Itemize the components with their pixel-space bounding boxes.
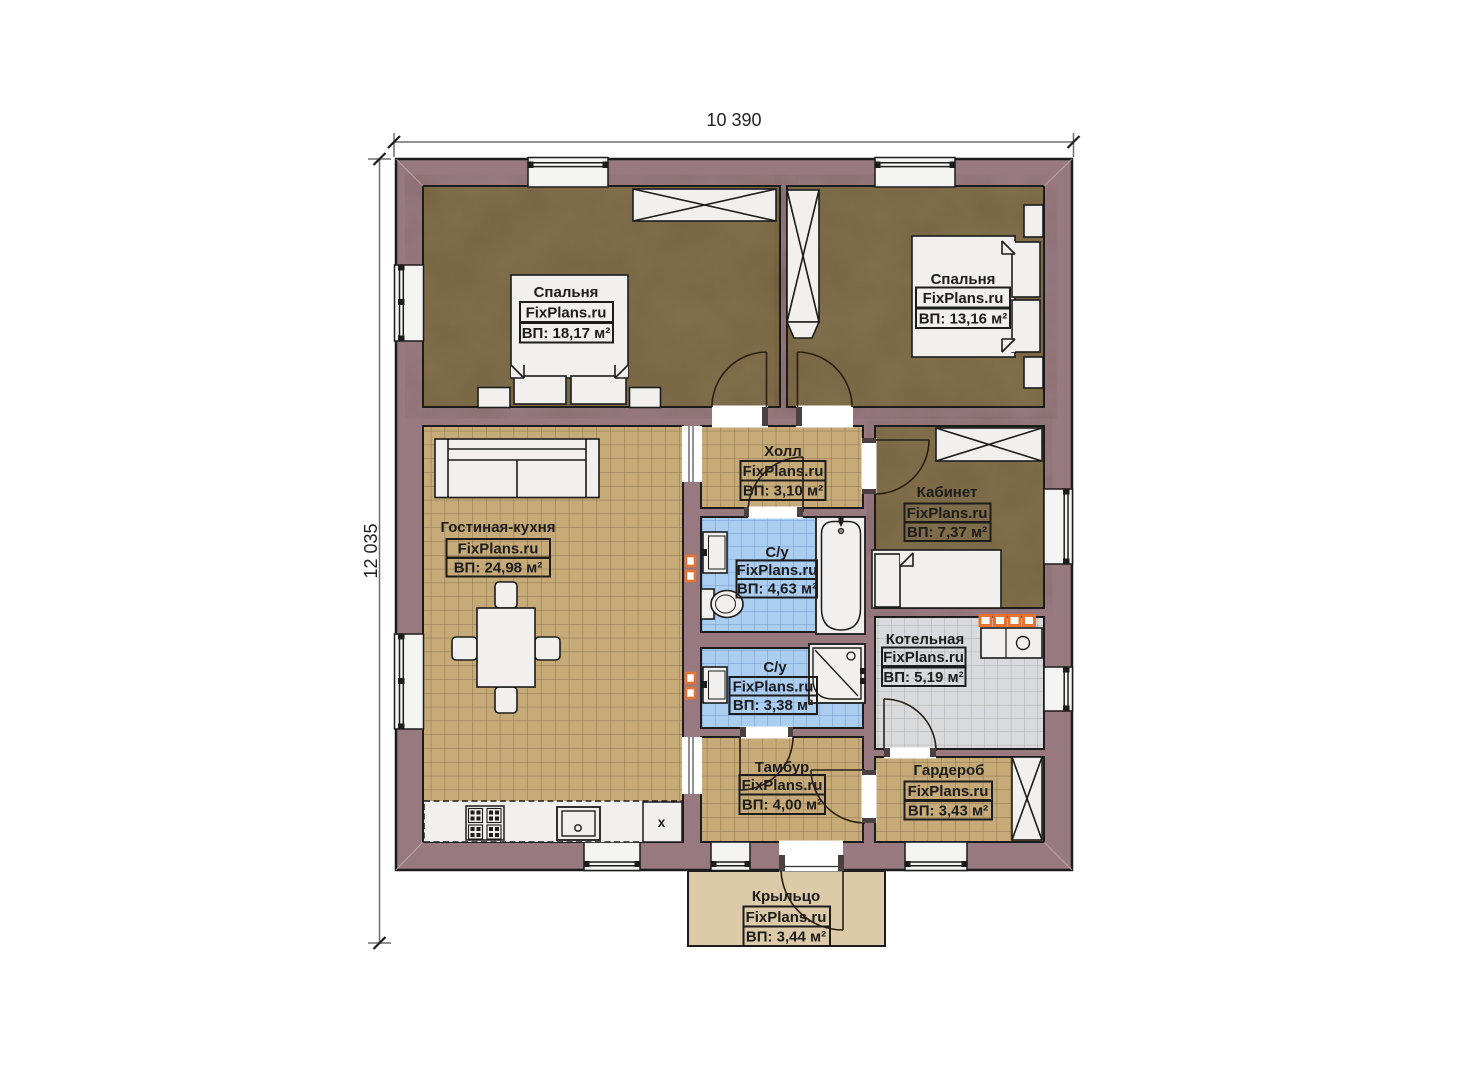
svg-text:ВП: 24,98 м²: ВП: 24,98 м² — [454, 560, 543, 577]
svg-text:ВП: 3,38 м²: ВП: 3,38 м² — [733, 697, 813, 714]
svg-text:Спальня: Спальня — [931, 271, 996, 288]
svg-text:Гардероб: Гардероб — [914, 762, 985, 779]
svg-text:ВП: 13,16 м²: ВП: 13,16 м² — [919, 311, 1008, 328]
svg-text:ВП: 3,10 м²: ВП: 3,10 м² — [743, 483, 823, 500]
svg-text:FixPlans.ru: FixPlans.ru — [908, 783, 989, 800]
svg-text:ВП: 4,63 м²: ВП: 4,63 м² — [737, 581, 817, 598]
svg-text:Котельная: Котельная — [886, 631, 965, 648]
svg-text:FixPlans.ru: FixPlans.ru — [883, 649, 964, 666]
svg-text:Холл: Холл — [764, 443, 802, 460]
svg-text:FixPlans.ru: FixPlans.ru — [746, 909, 827, 926]
svg-text:Крыльцо: Крыльцо — [752, 888, 820, 905]
svg-text:Спальня: Спальня — [534, 284, 599, 301]
svg-text:Тамбур: Тамбур — [755, 759, 809, 776]
svg-text:ВП: 4,00 м²: ВП: 4,00 м² — [742, 797, 822, 814]
svg-text:Гостиная-кухня: Гостиная-кухня — [441, 519, 556, 536]
svg-text:FixPlans.ru: FixPlans.ru — [733, 679, 814, 696]
svg-text:Кабинет: Кабинет — [917, 484, 978, 501]
svg-text:С/у: С/у — [763, 659, 787, 676]
svg-text:ВП: 7,37 м²: ВП: 7,37 м² — [907, 524, 987, 541]
svg-text:x: x — [658, 815, 666, 830]
svg-text:FixPlans.ru: FixPlans.ru — [526, 305, 607, 322]
svg-text:ВП: 3,43 м²: ВП: 3,43 м² — [908, 803, 988, 820]
svg-text:FixPlans.ru: FixPlans.ru — [923, 290, 1004, 307]
svg-text:FixPlans.ru: FixPlans.ru — [737, 562, 818, 579]
svg-text:ВП: 5,19 м²: ВП: 5,19 м² — [883, 669, 963, 686]
svg-text:FixPlans.ru: FixPlans.ru — [907, 505, 988, 522]
svg-text:ВП: 18,17 м²: ВП: 18,17 м² — [522, 325, 611, 342]
svg-text:10 390: 10 390 — [706, 110, 761, 130]
svg-text:12 035: 12 035 — [361, 523, 381, 578]
svg-text:FixPlans.ru: FixPlans.ru — [742, 777, 823, 794]
svg-text:С/у: С/у — [765, 544, 789, 561]
svg-text:FixPlans.ru: FixPlans.ru — [458, 541, 539, 558]
svg-text:ВП: 3,44 м²: ВП: 3,44 м² — [746, 929, 826, 946]
svg-text:FixPlans.ru: FixPlans.ru — [743, 463, 824, 480]
